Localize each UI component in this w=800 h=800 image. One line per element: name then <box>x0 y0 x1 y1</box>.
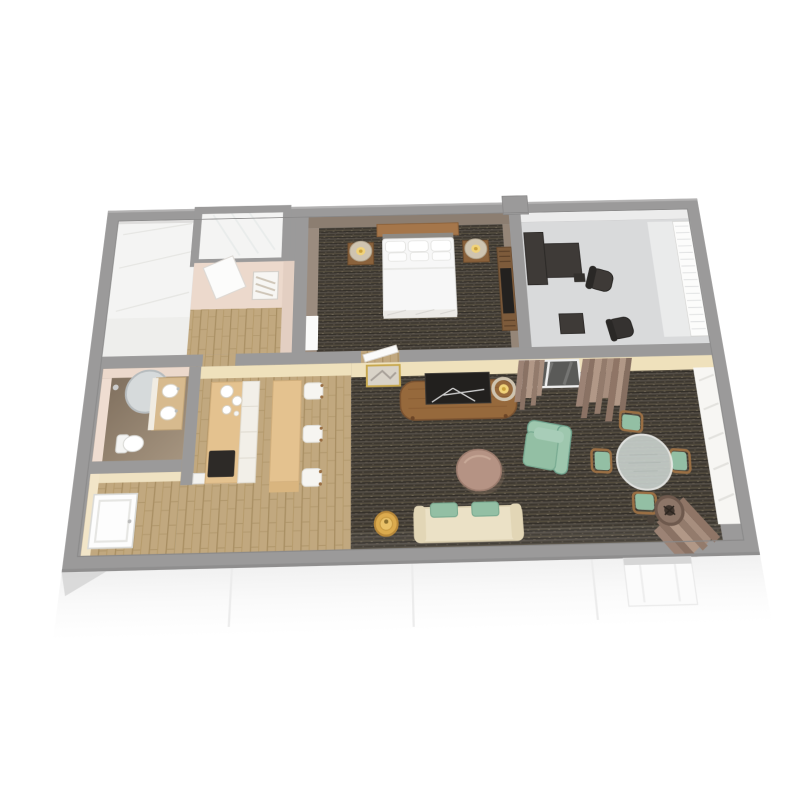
room-kitchen <box>175 363 352 554</box>
floorplan-scene <box>43 190 783 659</box>
room-shower <box>194 209 287 263</box>
room-bath-hall <box>187 255 295 355</box>
bar-stool <box>303 425 323 442</box>
pillow <box>410 252 429 261</box>
hall-wood-floor <box>187 307 293 354</box>
tv <box>425 372 491 404</box>
bar-stool <box>304 383 324 400</box>
bar-stool <box>302 468 322 486</box>
closet-cabinet <box>102 317 190 357</box>
room-living-dining <box>351 355 749 577</box>
bedside-lamp-left <box>350 241 372 261</box>
pillow <box>388 253 407 262</box>
bath-entry-wall <box>91 459 186 474</box>
room-bedroom <box>305 213 519 352</box>
hall-passage <box>202 354 236 367</box>
towel-shelf <box>252 271 278 299</box>
bed <box>383 238 458 319</box>
floorplan-svg <box>43 190 783 659</box>
entry-door <box>88 494 138 549</box>
pillow <box>431 240 452 251</box>
breakfast-bar <box>269 380 324 493</box>
bedroom-door-leaf <box>305 316 318 351</box>
office-side-table <box>559 313 585 333</box>
room-vanity-bathroom <box>92 367 190 462</box>
bench-sofa <box>414 501 524 542</box>
pillow <box>408 241 428 252</box>
vanity <box>148 377 186 430</box>
kitchen-counter <box>205 381 260 483</box>
bed-foot <box>383 309 457 319</box>
bench-cushion <box>472 502 500 516</box>
framed-art <box>367 365 400 386</box>
kitchen-wood-floor <box>175 363 352 554</box>
bench-cushion <box>430 503 457 518</box>
pillow <box>385 241 405 252</box>
gold-side-table <box>375 512 398 536</box>
cooktop <box>207 450 235 477</box>
wall-stub <box>502 196 528 215</box>
exterior-column <box>623 557 697 606</box>
room-office <box>520 209 710 347</box>
page-background: { "scene": { "type": "3d-floorplan-rende… <box>0 0 800 800</box>
room-entry <box>81 472 182 557</box>
pillow <box>432 252 451 261</box>
